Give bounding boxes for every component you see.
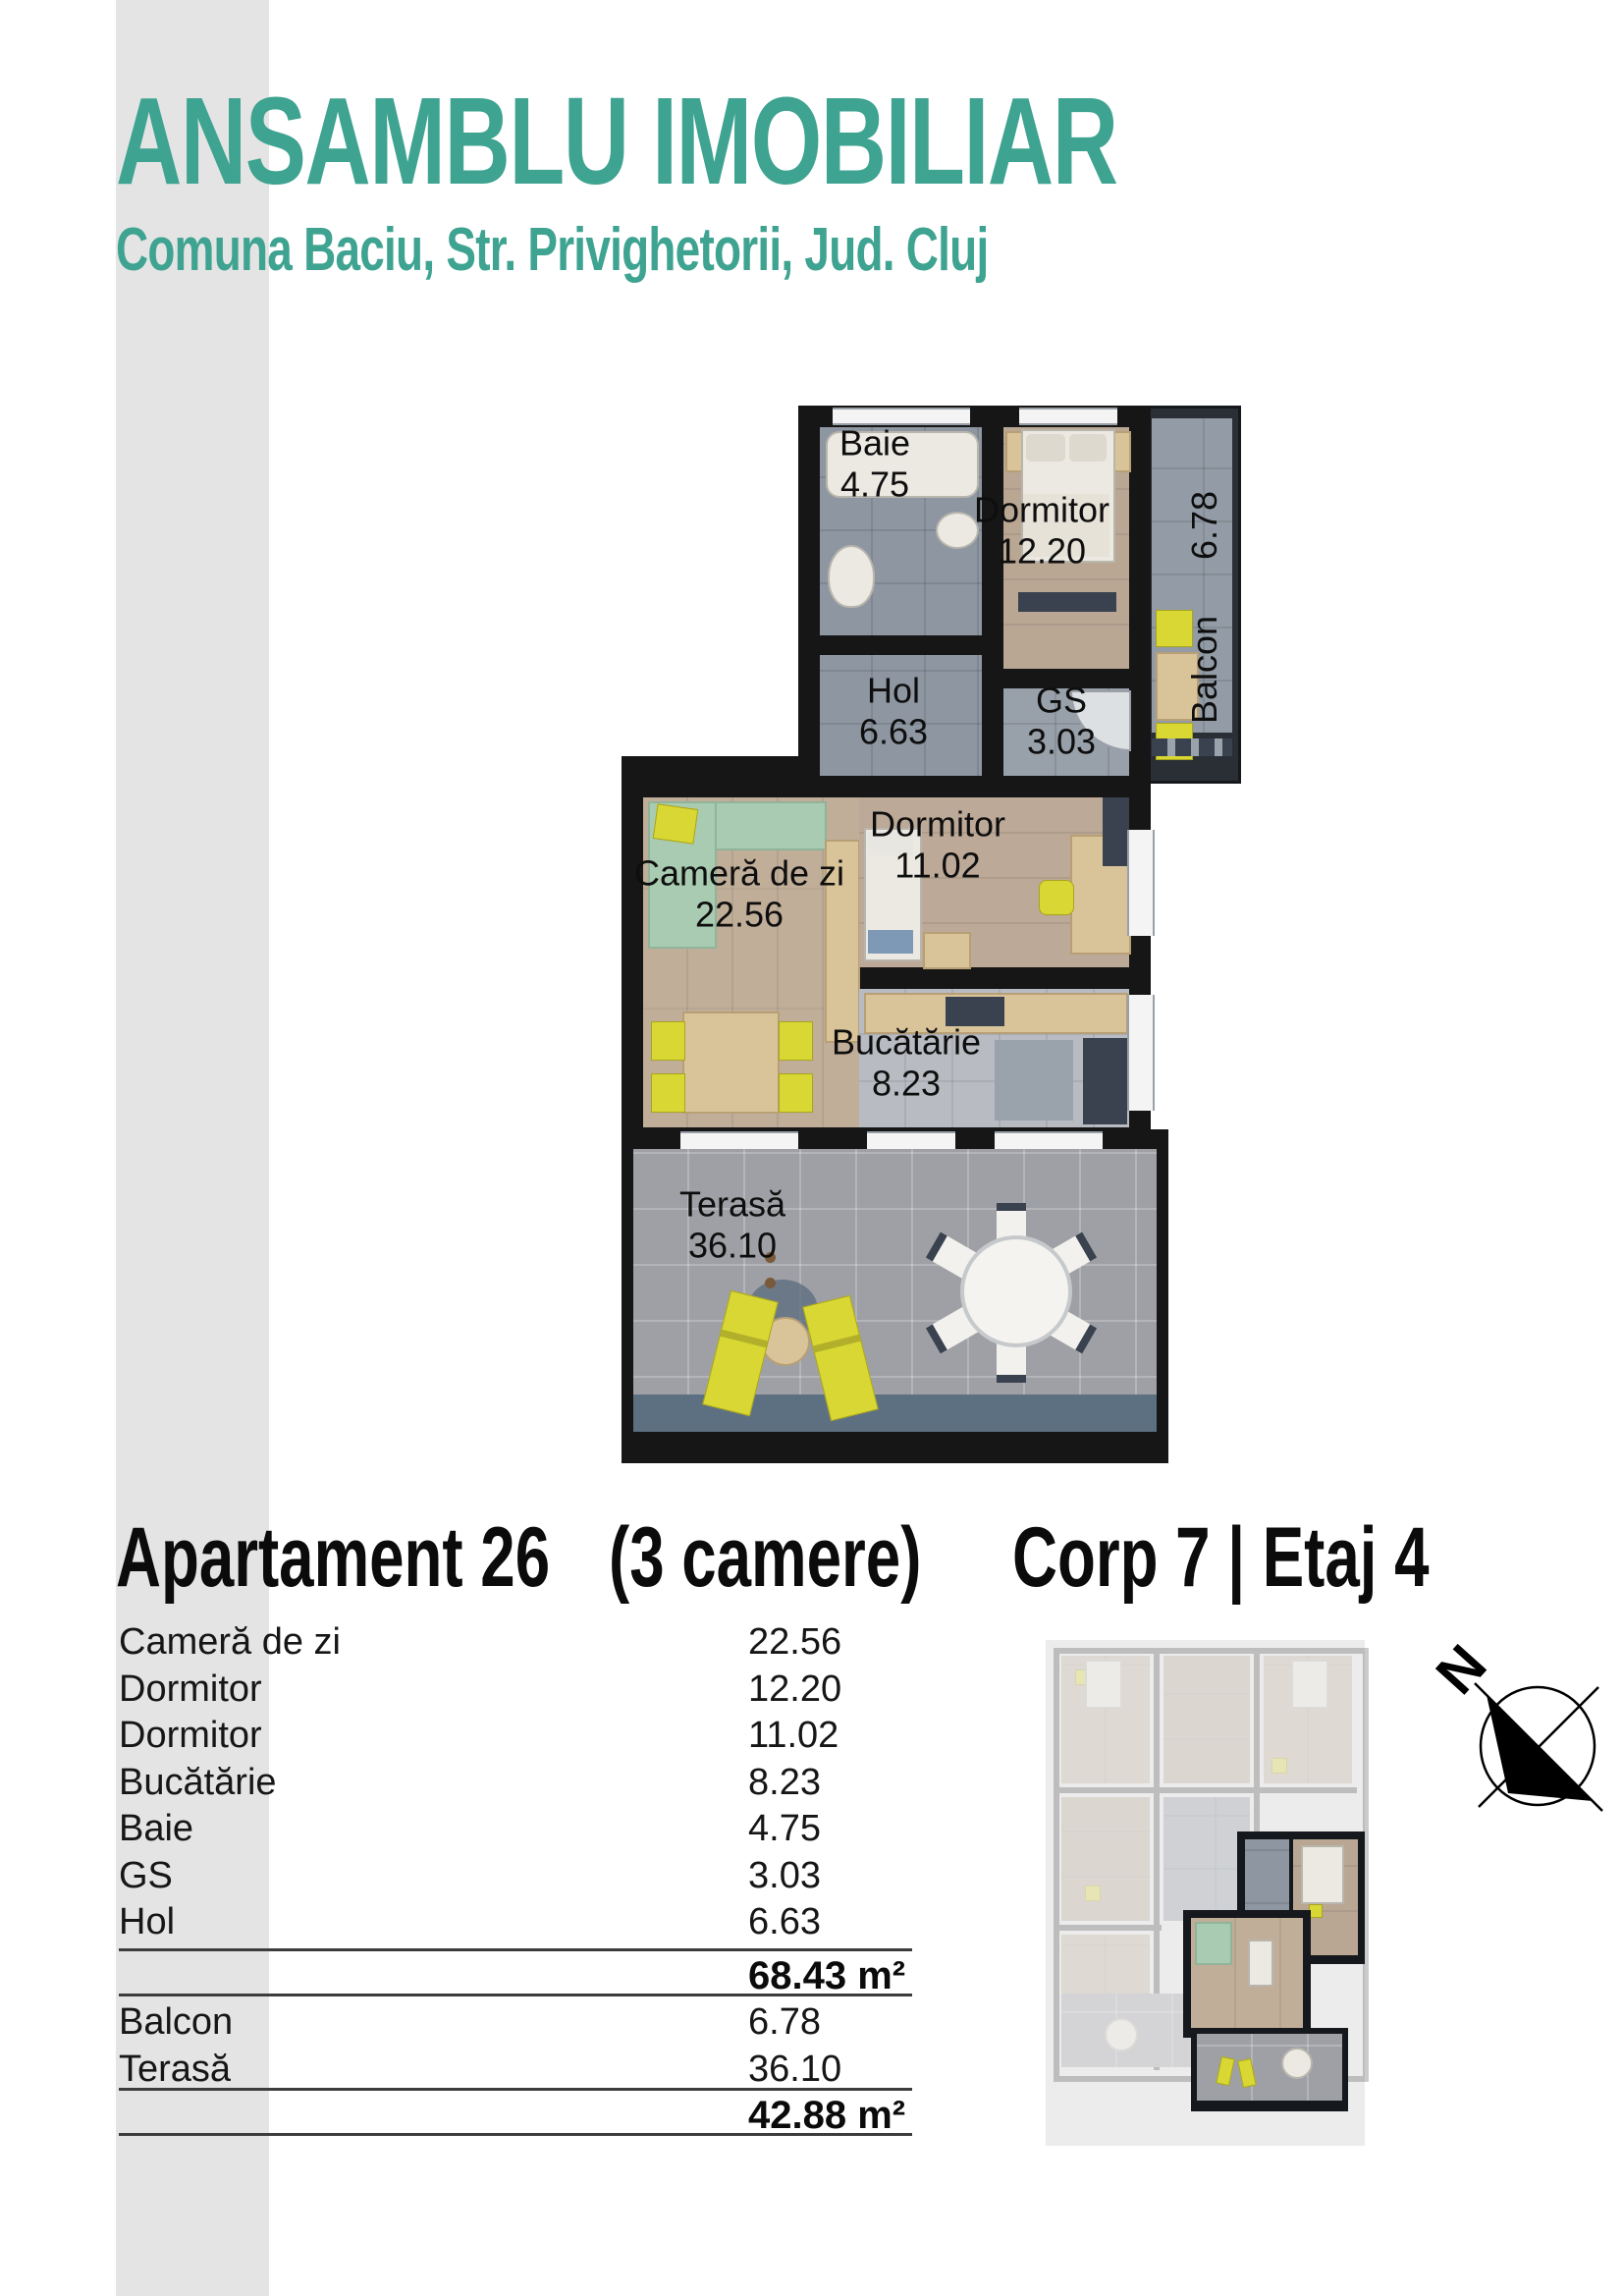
row-value: 12.20 [748, 1670, 841, 1708]
page-subtitle: Comuna Baciu, Str. Privighetorii, Jud. C… [116, 218, 988, 282]
side-table [923, 932, 971, 969]
divider [119, 1948, 912, 1951]
row-label: GS [119, 1857, 173, 1894]
label-hol: Hol 6.63 [859, 671, 928, 754]
apartment-name: Apartament 26 [116, 1515, 550, 1600]
row-value: 6.78 [748, 2003, 821, 2041]
desk-chair [1039, 880, 1074, 915]
terrace-door [867, 1131, 955, 1151]
decor-dot [765, 1278, 776, 1288]
room-area: 3.03 [1027, 722, 1096, 763]
left-stripe [116, 0, 269, 2296]
row-label: Baie [119, 1810, 193, 1847]
pillow [868, 930, 913, 954]
room-area: 6.63 [859, 712, 928, 753]
divider [119, 2133, 912, 2136]
room-name: Hol [859, 671, 928, 712]
fridge [1083, 1038, 1127, 1124]
brochure-page: ANSAMBLU IMOBILIAR Comuna Baciu, Str. Pr… [0, 0, 1623, 2296]
kitchen-rug [995, 1040, 1073, 1121]
label-gs: GS 3.03 [1027, 681, 1096, 764]
interior-total: 68.43 m² [748, 1956, 905, 1995]
pillow [1026, 434, 1065, 462]
label-dormitor-2: Dormitor 11.02 [870, 804, 1005, 888]
room-name: Baie [839, 423, 910, 465]
mini-floor-plan [1046, 1640, 1365, 2146]
label-balcon-name: Balcon [1184, 616, 1225, 724]
label-dormitor-1: Dormitor 12.20 [974, 490, 1109, 574]
room-name: Dormitor [974, 490, 1109, 531]
label-terasa: Terasă 36.10 [679, 1184, 785, 1268]
apartment-location: Corp 7 | Etaj 4 [1012, 1515, 1430, 1600]
room-name: Cameră de zi [634, 853, 844, 895]
nightstand [1113, 431, 1131, 472]
mini-highlight-unit [1183, 1831, 1365, 2116]
sink [936, 512, 979, 549]
room-area: 8.23 [832, 1064, 981, 1105]
toilet [828, 545, 875, 608]
divider [119, 2088, 912, 2091]
room-name: Terasă [679, 1184, 785, 1226]
balcony-edge [1152, 738, 1232, 756]
window [1127, 995, 1155, 1111]
terrace-door [680, 1131, 798, 1151]
page-title: ANSAMBLU IMOBILIAR [116, 77, 1117, 206]
row-label: Bucătărie [119, 1764, 277, 1801]
window [1019, 408, 1117, 425]
divider [119, 1994, 912, 1996]
room-name: Bucătărie [832, 1022, 981, 1064]
row-value: 36.10 [748, 2050, 841, 2088]
bench [1018, 592, 1116, 612]
row-value: 3.03 [748, 1857, 821, 1894]
row-value: 6.63 [748, 1903, 821, 1941]
sofa-cushion [653, 803, 699, 844]
row-value: 22.56 [748, 1623, 841, 1661]
label-camera-de-zi: Cameră de zi 22.56 [634, 853, 844, 937]
chair [651, 1073, 685, 1113]
label-baie: Baie 4.75 [839, 423, 910, 507]
dining-table [682, 1011, 780, 1114]
wardrobe [1103, 797, 1129, 866]
terrace-table [960, 1235, 1072, 1347]
room-area: 4.75 [839, 465, 910, 506]
row-label: Balcon [119, 2003, 233, 2041]
row-value: 11.02 [748, 1717, 839, 1754]
label-bucatarie: Bucătărie 8.23 [832, 1022, 981, 1106]
outdoor-total: 42.88 m² [748, 2096, 905, 2135]
window [1127, 830, 1155, 936]
room-name: GS [1027, 681, 1096, 722]
row-label: Cameră de zi [119, 1623, 341, 1661]
row-label: Hol [119, 1903, 175, 1941]
apartment-rooms-count: (3 camere) [609, 1515, 921, 1600]
row-label: Dormitor [119, 1717, 262, 1754]
room-area: 11.02 [870, 846, 1005, 887]
room-area: 22.56 [634, 895, 844, 936]
pillow [1069, 434, 1107, 462]
label-balcon-area: 6.78 [1184, 491, 1225, 560]
chair [651, 1021, 685, 1061]
compass-rose: N [1414, 1601, 1623, 1856]
compass: N [1414, 1601, 1623, 1856]
row-value: 4.75 [748, 1810, 821, 1847]
room-area: 36.10 [679, 1226, 785, 1267]
room-name: Dormitor [870, 804, 1005, 846]
floor-plan: Baie 4.75 Dormitor 12.20 6.78 Balcon Hol… [622, 406, 1235, 1463]
row-label: Dormitor [119, 1670, 262, 1708]
terrace-door [995, 1131, 1103, 1151]
compass-needle [1487, 1695, 1593, 1801]
row-label: Terasă [119, 2050, 231, 2088]
chair [779, 1073, 813, 1113]
chair [779, 1021, 813, 1061]
row-value: 8.23 [748, 1764, 821, 1801]
room-area: 12.20 [974, 531, 1109, 573]
